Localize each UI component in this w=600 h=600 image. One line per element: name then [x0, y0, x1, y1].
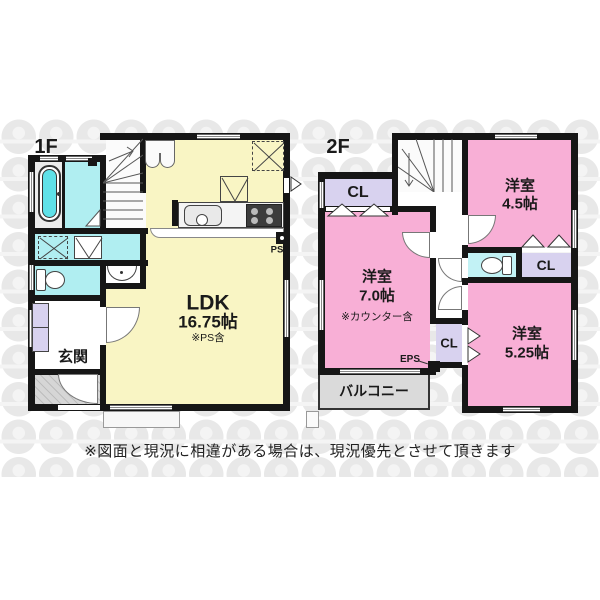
pantry-door-leaf — [145, 153, 160, 168]
pantry-door-leaf — [160, 153, 175, 168]
toilet-bowl — [45, 271, 65, 289]
bathtub — [42, 169, 57, 218]
window — [110, 405, 172, 410]
closet-nw-label: CL — [347, 185, 368, 201]
ldk-room — [143, 140, 284, 405]
floor1-label: 1F — [34, 137, 57, 157]
balcony-label: バルコニー — [339, 384, 409, 398]
bedroom45-size: 4.5帖 — [502, 197, 538, 212]
wall — [100, 345, 106, 411]
toilet-bowl — [481, 257, 503, 274]
laundry-box — [38, 236, 68, 259]
front-door-opening — [58, 405, 100, 410]
disclaimer-text: ※図面と現況に相違がある場合は、現況優先とさせて頂きます — [0, 440, 600, 461]
balcony-step — [306, 411, 319, 428]
shoe-cabinet-shelf — [32, 327, 49, 328]
bedroom7-label: 洋室 — [362, 270, 392, 285]
stairs-1f — [103, 133, 143, 228]
door-opening — [462, 258, 468, 278]
burner — [266, 217, 273, 224]
wall — [62, 158, 65, 230]
wall — [318, 172, 398, 179]
bathtub-drain — [57, 192, 61, 196]
window — [29, 265, 34, 290]
bifold-doors-ne — [520, 233, 572, 249]
genkan-label: 玄関 — [58, 350, 88, 365]
counter-edge — [150, 228, 284, 238]
window — [495, 134, 537, 139]
window — [319, 280, 324, 330]
stairs-2f — [398, 139, 462, 192]
wall — [571, 133, 578, 413]
ldk-label: LDK — [186, 293, 229, 314]
bedroom525-size: 5.25帖 — [505, 346, 549, 361]
wall — [516, 247, 522, 283]
floor2-label: 2F — [326, 137, 349, 157]
wall — [462, 133, 468, 215]
vanity-box — [74, 236, 102, 259]
balcony-slider-window — [340, 369, 420, 374]
basin-drain — [120, 271, 123, 274]
burner — [251, 217, 258, 224]
wall — [28, 295, 106, 301]
eps-box — [428, 361, 440, 372]
wall — [462, 247, 522, 253]
wall — [100, 295, 106, 307]
bedroom7-size: 7.0帖 — [359, 289, 395, 304]
column — [88, 158, 97, 166]
bedroom7-note: ※カウンター含 — [341, 312, 413, 323]
floor-plan-page: 1F — [0, 0, 600, 600]
window — [503, 407, 540, 412]
storage-box — [252, 141, 284, 171]
toilet-tank — [502, 256, 512, 275]
closet-mid-label: CL — [440, 337, 457, 350]
door-opening — [462, 285, 468, 310]
window — [284, 280, 289, 337]
washroom-door-mark — [84, 208, 102, 228]
wall — [462, 310, 468, 325]
window — [40, 156, 58, 161]
window — [319, 182, 324, 208]
window — [572, 310, 577, 360]
door-swing-mark — [289, 175, 303, 193]
closet-ne-label: CL — [537, 258, 556, 272]
burner — [251, 208, 258, 215]
stove — [246, 204, 282, 227]
burner — [266, 208, 273, 215]
ldk-size: 16.75帖 — [178, 314, 238, 331]
window — [197, 134, 240, 139]
ldk-note: ※PS含 — [191, 333, 224, 344]
bedroom525-label: 洋室 — [512, 327, 542, 342]
door-opening — [430, 232, 436, 258]
bedroom45-label: 洋室 — [505, 179, 535, 194]
fridge-space-box — [220, 176, 248, 202]
window — [572, 210, 577, 248]
pipe-space-dot — [280, 236, 284, 240]
wall — [430, 258, 436, 324]
porch-step — [103, 411, 180, 428]
ps-label: PS — [271, 245, 284, 255]
wall — [462, 365, 468, 413]
bifold-doors-mid — [466, 326, 482, 364]
wall — [28, 228, 148, 234]
pantry-frame — [145, 140, 175, 154]
window — [29, 172, 34, 212]
eps-label: EPS — [400, 355, 420, 365]
bifold-doors-nw — [326, 202, 390, 218]
wall — [430, 206, 436, 232]
sink-drain — [196, 214, 208, 226]
wall — [140, 228, 146, 289]
